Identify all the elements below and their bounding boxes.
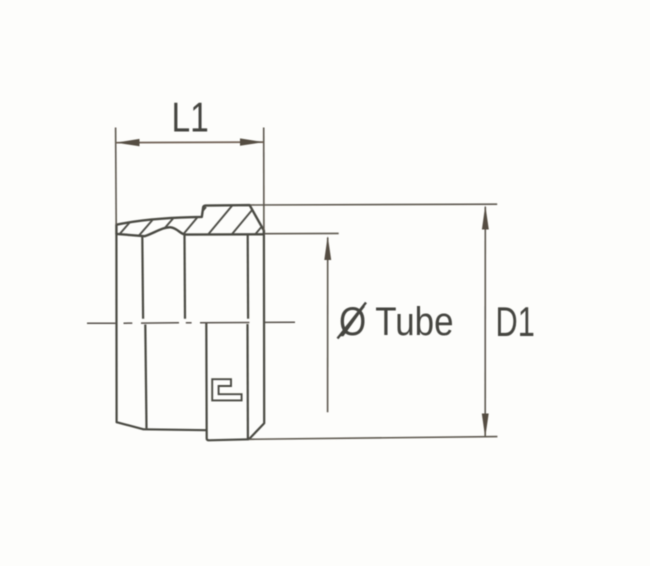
svg-text:Ø Tube: Ø Tube [339, 299, 453, 344]
svg-text:L1: L1 [172, 95, 209, 141]
svg-text:D1: D1 [496, 298, 535, 345]
